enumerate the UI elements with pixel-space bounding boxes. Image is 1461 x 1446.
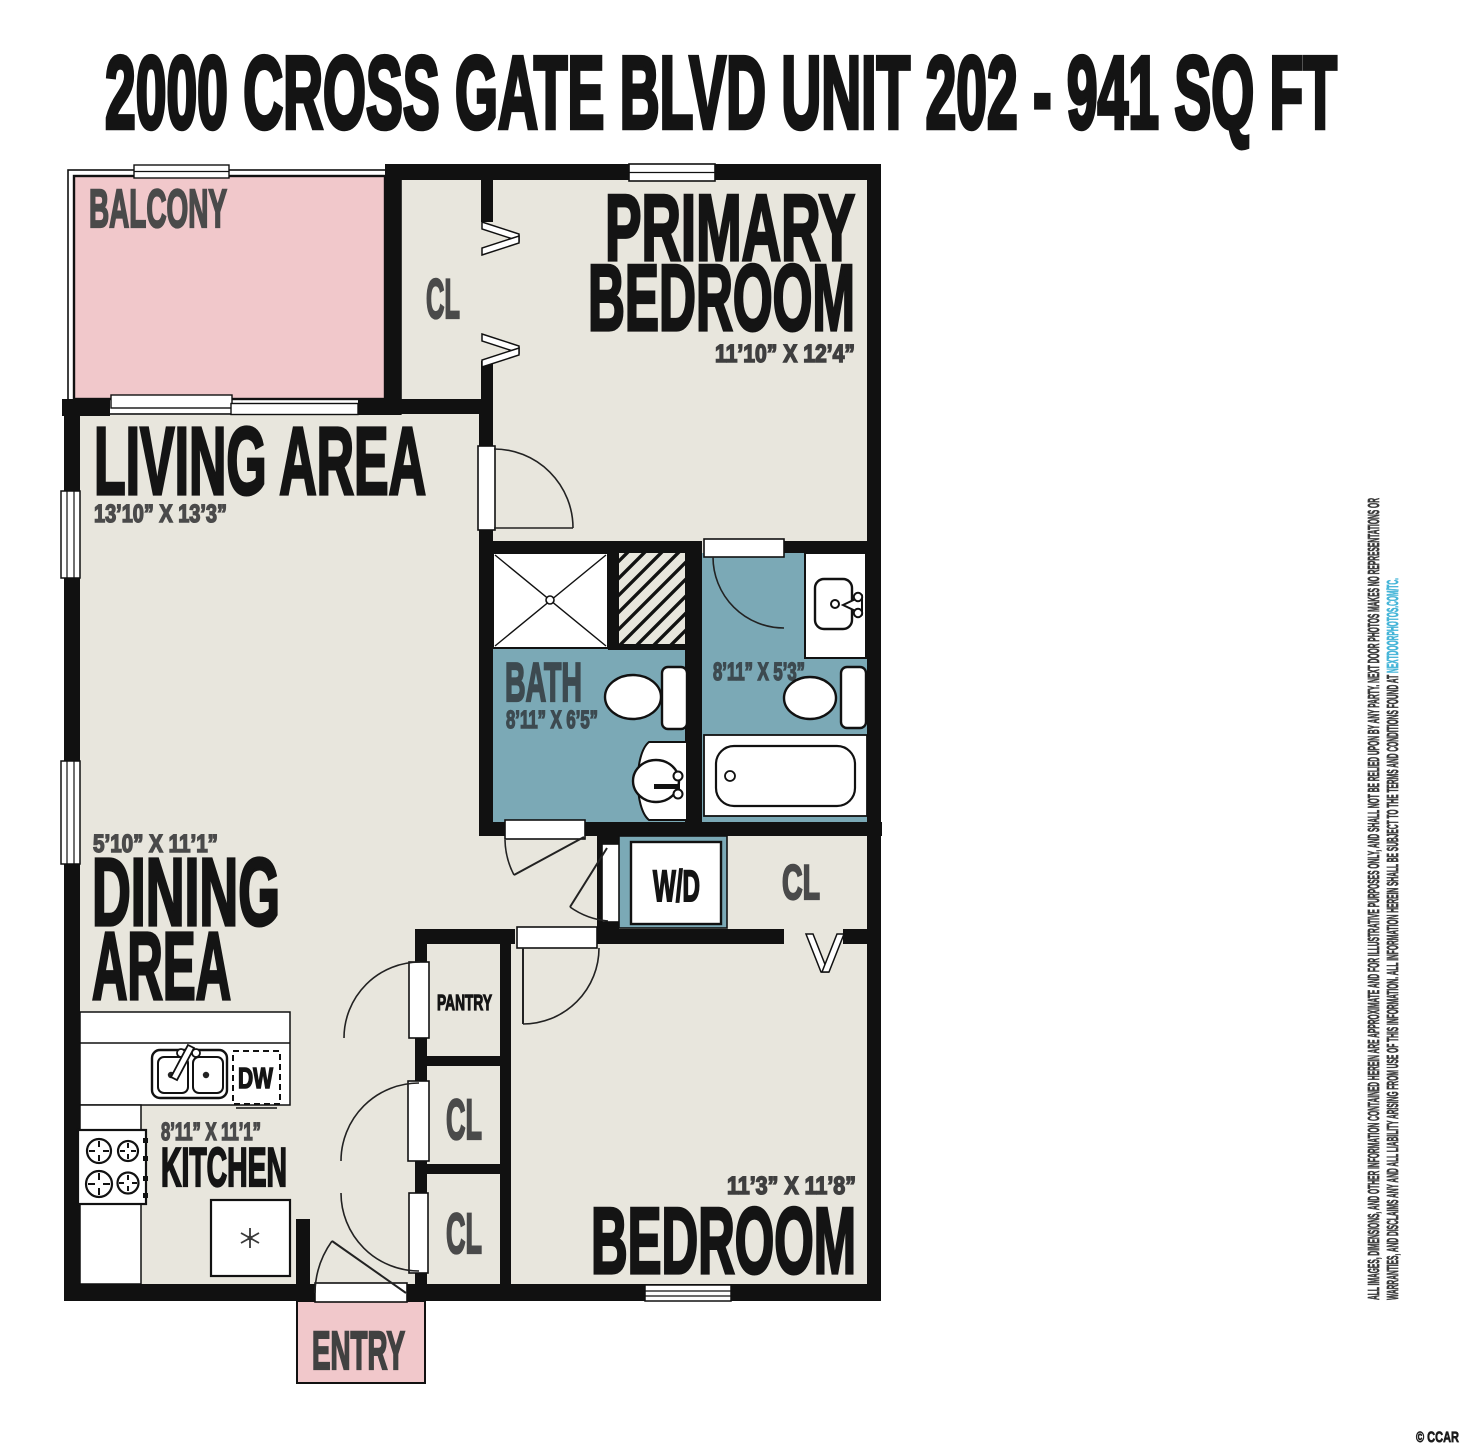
svg-text:CL: CL <box>446 1202 482 1266</box>
svg-text:KITCHEN: KITCHEN <box>161 1136 287 1198</box>
svg-text:PANTRY: PANTRY <box>437 990 492 1015</box>
svg-text:CL: CL <box>446 1088 482 1152</box>
svg-text:CL: CL <box>782 856 820 910</box>
svg-text:BATH: BATH <box>505 651 582 713</box>
svg-text:BEDROOM: BEDROOM <box>588 245 855 350</box>
svg-text:13’10” X 13’3”: 13’10” X 13’3” <box>94 500 227 528</box>
svg-text:CL: CL <box>426 267 460 330</box>
svg-text:ENTRY: ENTRY <box>312 1321 405 1381</box>
svg-text:2000 CROSS GATE BLVD UNIT 202: 2000 CROSS GATE BLVD UNIT 202 - 941 SQ F… <box>105 35 1337 150</box>
svg-text:© CCAR: © CCAR <box>1416 1429 1459 1446</box>
svg-text:WARRANTIES, AND DISCLAIMS ANY: WARRANTIES, AND DISCLAIMS ANY AND ALL LI… <box>1385 578 1402 1300</box>
svg-text:8’11” X 5’3”: 8’11” X 5’3” <box>713 658 805 686</box>
svg-text:DW: DW <box>238 1063 273 1095</box>
svg-text:BALCONY: BALCONY <box>89 179 227 239</box>
svg-text:ALL IMAGES, DIMENSIONS, AND OT: ALL IMAGES, DIMENSIONS, AND OTHER INFORM… <box>1366 498 1383 1300</box>
svg-text:AREA: AREA <box>92 913 231 1020</box>
svg-text:8’11” X 6’5”: 8’11” X 6’5” <box>506 706 598 734</box>
svg-text:11’10” X 12’4”: 11’10” X 12’4” <box>715 340 855 368</box>
svg-text:W/D: W/D <box>653 862 700 911</box>
svg-text:LIVING AREA: LIVING AREA <box>94 408 426 515</box>
svg-text:BEDROOM: BEDROOM <box>591 1188 856 1293</box>
